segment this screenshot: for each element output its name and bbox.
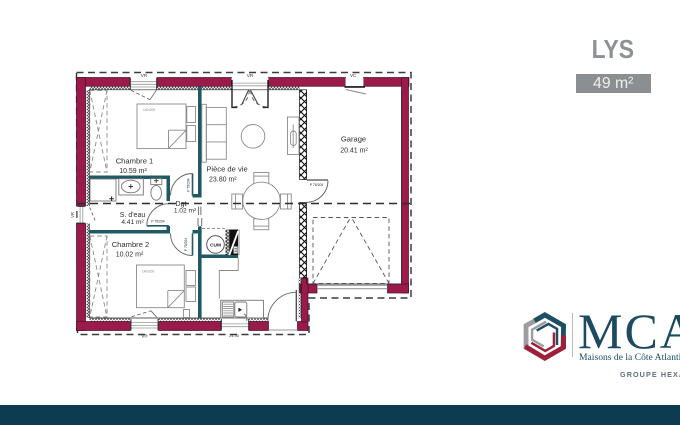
svg-text:Pièce de vie: Pièce de vie [206,164,247,173]
svg-text:S. d'eau: S. d'eau [120,212,146,219]
svg-text:10.59 m²: 10.59 m² [119,168,147,175]
svg-text:20.41 m²: 20.41 m² [340,147,368,154]
svg-text:140x200: 140x200 [142,270,154,274]
svg-text:P 75/204: P 75/204 [310,183,324,187]
svg-text:VR: VR [247,73,254,78]
svg-text:P 75/204: P 75/204 [151,220,164,224]
svg-text:10.02 m²: 10.02 m² [116,251,144,258]
svg-text:4.41 m²: 4.41 m² [121,219,144,226]
svg-text:24.30: 24.30 [229,333,240,338]
svg-text:VR: VR [70,212,75,218]
svg-text:Garage: Garage [341,135,366,144]
svg-text:23.80 m²: 23.80 m² [209,176,237,183]
svg-text:Chambre 1: Chambre 1 [116,157,154,166]
svg-text:140x200: 140x200 [143,108,155,112]
svg-text:VR: VR [141,73,148,78]
svg-text:P 75/204: P 75/204 [187,178,191,191]
svg-text:1.02 m²: 1.02 m² [174,207,197,214]
svg-text:Chambre 2: Chambre 2 [112,240,150,249]
svg-text:VC: VC [350,73,356,78]
svg-text:P 75/204: P 75/204 [184,238,188,251]
svg-text:CUM: CUM [210,242,221,248]
svg-text:VR: VR [141,334,148,339]
